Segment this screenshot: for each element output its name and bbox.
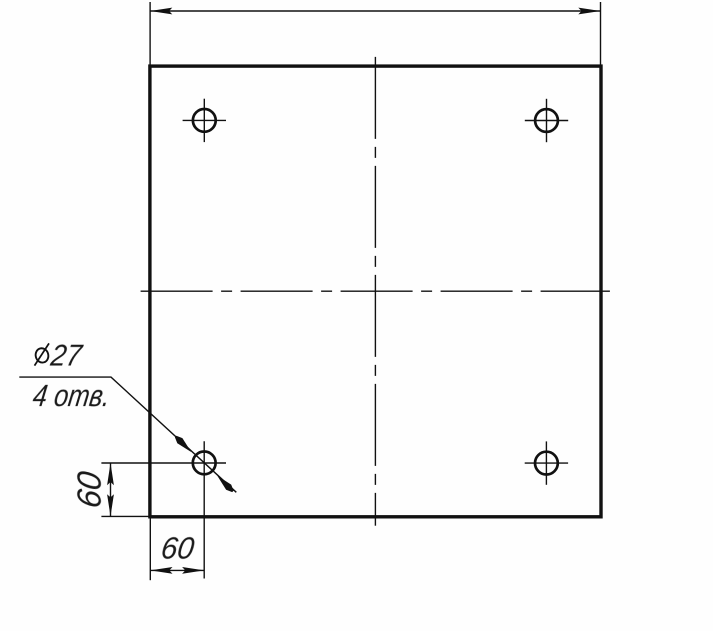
svg-text:60: 60 [71,469,109,511]
svg-text:4 отв.: 4 отв. [31,379,113,414]
svg-text:27: 27 [48,339,85,372]
svg-text:60: 60 [159,531,196,566]
